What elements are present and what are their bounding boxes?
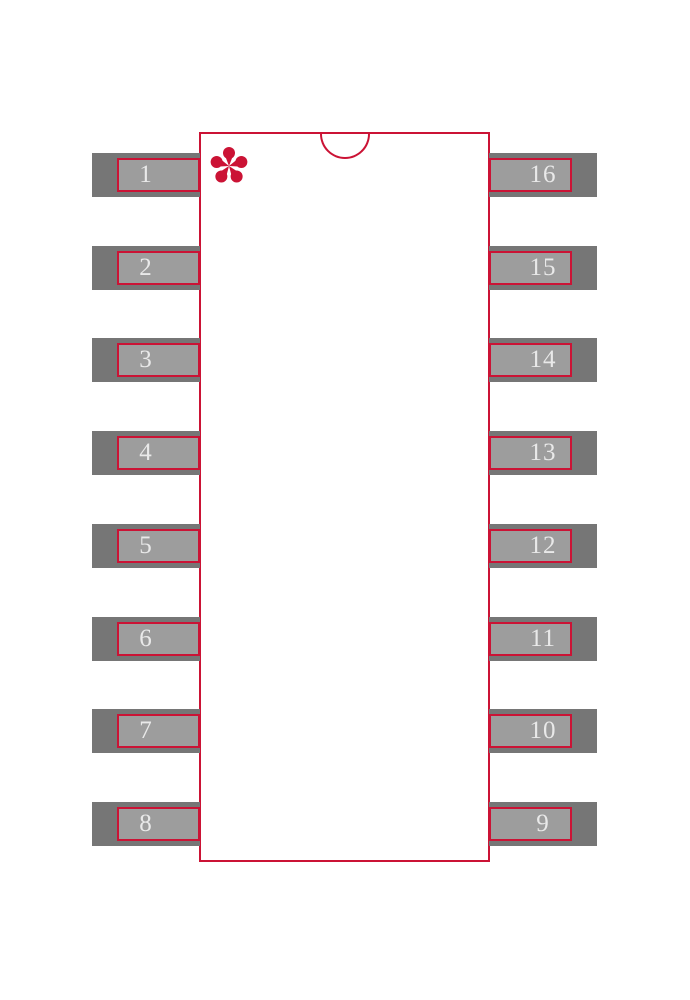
pin-number: 15	[489, 246, 597, 290]
pad-8: 8	[92, 802, 200, 846]
pad-6: 6	[92, 617, 200, 661]
pad-9: 9	[489, 802, 597, 846]
pad-13: 13	[489, 431, 597, 475]
pad-11: 11	[489, 617, 597, 661]
pin-number: 9	[489, 802, 597, 846]
pin-number: 13	[489, 431, 597, 475]
pin1-marker-asterisk-icon	[208, 145, 250, 187]
pad-10: 10	[489, 709, 597, 753]
pad-12: 12	[489, 524, 597, 568]
pad-16: 16	[489, 153, 597, 197]
pin-number: 14	[489, 338, 597, 382]
pad-2: 2	[92, 246, 200, 290]
pin-number: 8	[92, 802, 200, 846]
pin-number: 5	[92, 524, 200, 568]
pad-1: 1	[92, 153, 200, 197]
pin-number: 12	[489, 524, 597, 568]
pad-7: 7	[92, 709, 200, 753]
pin-number: 2	[92, 246, 200, 290]
pin-number: 6	[92, 617, 200, 661]
pad-3: 3	[92, 338, 200, 382]
pin-number: 10	[489, 709, 597, 753]
footprint-canvas: 1 2 3 4 5 6 7 8 16 15 14 13 12 11 10 9	[0, 0, 690, 1000]
pad-15: 15	[489, 246, 597, 290]
pin-number: 1	[92, 153, 200, 197]
pin-number: 7	[92, 709, 200, 753]
pin-number: 16	[489, 153, 597, 197]
pad-14: 14	[489, 338, 597, 382]
package-body-outline	[199, 132, 490, 862]
pin-number: 4	[92, 431, 200, 475]
pin-number: 3	[92, 338, 200, 382]
pin-number: 11	[489, 617, 597, 661]
pad-4: 4	[92, 431, 200, 475]
pad-5: 5	[92, 524, 200, 568]
